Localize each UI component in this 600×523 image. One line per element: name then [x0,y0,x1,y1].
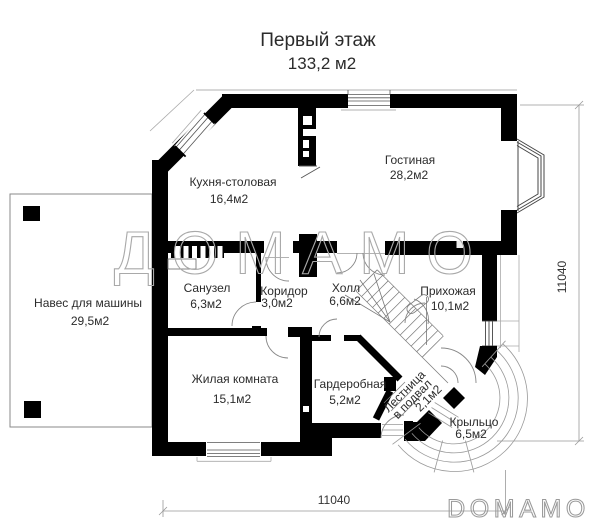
svg-text:Первый этаж: Первый этаж [260,30,376,51]
svg-text:Жилая комната: Жилая комната [192,372,279,386]
svg-text:29,5м2: 29,5м2 [71,314,110,328]
svg-text:28,2м2: 28,2м2 [390,168,429,182]
svg-text:3,0м2: 3,0м2 [261,296,293,310]
svg-text:133,2 м2: 133,2 м2 [288,54,356,73]
svg-text:16,4м2: 16,4м2 [210,192,249,206]
svg-text:6,5м2: 6,5м2 [455,427,487,441]
svg-text:DOMAMO: DOMAMO [447,495,590,523]
svg-text:10,1м2: 10,1м2 [431,299,470,313]
svg-text:Гостиная: Гостиная [385,153,435,167]
svg-text:6,3м2: 6,3м2 [190,297,222,311]
svg-text:Кухня-столовая: Кухня-столовая [189,175,276,189]
svg-text:11040: 11040 [318,493,351,507]
svg-text:15,1м2: 15,1м2 [213,392,252,406]
svg-text:6,6м2: 6,6м2 [329,294,361,308]
svg-text:5,2м2: 5,2м2 [329,393,361,407]
svg-text:ДОМАМО: ДОМАМО [114,220,490,287]
svg-text:Гардеробная: Гардеробная [314,377,387,391]
svg-text:11040: 11040 [555,260,569,293]
svg-text:Навес для машины: Навес для машины [34,296,142,310]
